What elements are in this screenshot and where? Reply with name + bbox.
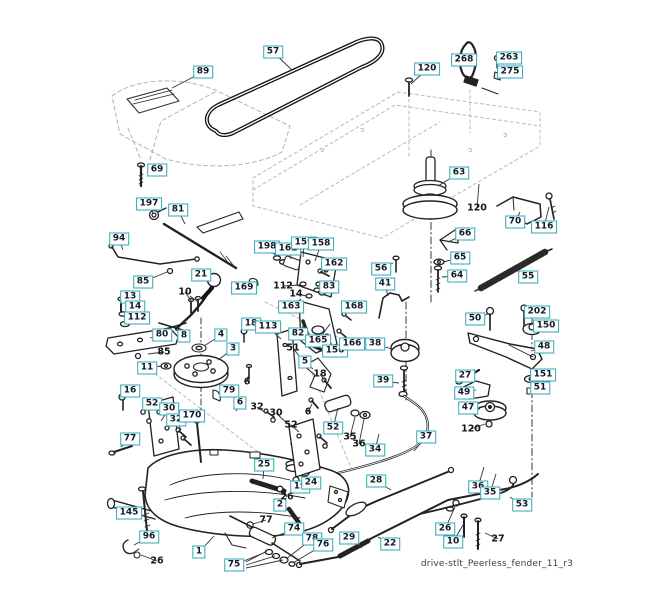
- callout-85-14: 85: [133, 276, 153, 289]
- callout-151-46: 151: [530, 369, 556, 382]
- ref-number-30-9: 30: [269, 408, 282, 419]
- callout-94-13: 94: [109, 233, 129, 246]
- callout-83-22: 83: [319, 281, 339, 294]
- callout-169-21: 169: [231, 282, 257, 295]
- ref-number-18-7: 18: [313, 369, 326, 380]
- ref-number-32-8: 32: [250, 402, 263, 413]
- callout-labels-layer: 5789120268263275691978163701166694852119…: [0, 0, 667, 600]
- callout-8-63: 8: [177, 330, 190, 343]
- callout-37-66: 37: [416, 431, 436, 444]
- ref-number-6-6: 6: [244, 377, 251, 388]
- callout-56-23: 56: [371, 263, 391, 276]
- callout-162-20: 162: [321, 258, 347, 271]
- callout-22-80: 22: [380, 538, 400, 551]
- callout-112-30: 112: [124, 312, 150, 325]
- callout-263-4: 263: [496, 52, 522, 65]
- callout-53-83: 53: [512, 499, 532, 512]
- callout-3-61: 3: [226, 343, 239, 356]
- callout-74-74: 74: [284, 523, 304, 536]
- callout-29-79: 29: [339, 532, 359, 545]
- callout-41-24: 41: [375, 278, 395, 291]
- callout-70-10: 70: [505, 216, 525, 229]
- ref-number-14-2: 14: [289, 289, 302, 300]
- callout-76-77: 76: [313, 539, 333, 552]
- callout-96-72: 96: [139, 531, 159, 544]
- callout-66-12: 66: [455, 228, 475, 241]
- callout-4-62: 4: [214, 329, 227, 342]
- callout-26-81: 26: [435, 523, 455, 536]
- callout-34-65: 34: [365, 444, 385, 457]
- callout-170-56: 170: [179, 410, 205, 423]
- callout-275-5: 275: [497, 66, 523, 79]
- callout-16-52: 16: [120, 385, 140, 398]
- callout-168-32: 168: [341, 301, 367, 314]
- callout-65-25: 65: [450, 252, 470, 265]
- callout-24-69: 24: [301, 477, 321, 490]
- callout-113-35: 113: [255, 321, 281, 334]
- callout-28-78: 28: [366, 475, 386, 488]
- callout-48-44: 48: [534, 341, 554, 354]
- callout-64-26: 64: [447, 270, 467, 283]
- callout-39-50: 39: [373, 375, 393, 388]
- callout-10-82: 10: [443, 536, 463, 549]
- ref-number-77-15: 77: [259, 515, 272, 526]
- ref-number-120-17: 120: [461, 424, 481, 435]
- callout-5-60: 5: [298, 356, 311, 369]
- ref-number-26-16: 26: [150, 556, 163, 567]
- ref-number-36-13: 36: [352, 439, 365, 450]
- ref-number-52-10: 52: [284, 420, 297, 431]
- callout-202-42: 202: [524, 306, 550, 319]
- callout-11-51: 11: [137, 362, 157, 375]
- ref-number-85-4: 85: [157, 347, 170, 358]
- ref-number-26-14: 26: [280, 492, 293, 503]
- callout-145-71: 145: [116, 507, 142, 520]
- callout-55-27: 55: [518, 271, 538, 284]
- callout-197-7: 197: [136, 198, 162, 211]
- callout-158-19: 158: [308, 238, 334, 251]
- callout-27-45: 27: [455, 370, 475, 383]
- callout-47-49: 47: [458, 402, 478, 415]
- callout-81-8: 81: [168, 204, 188, 217]
- callout-116-11: 116: [531, 221, 557, 234]
- ref-number-6-11: 6: [305, 407, 312, 418]
- ref-number-120-0: 120: [467, 203, 487, 214]
- callout-6-59: 6: [233, 397, 246, 410]
- callout-51-47: 51: [530, 382, 550, 395]
- callout-69-6: 69: [147, 164, 167, 177]
- callout-35-85: 35: [480, 487, 500, 500]
- ref-number-27-18: 27: [491, 534, 504, 545]
- callout-166-39: 166: [339, 338, 365, 351]
- callout-63-9: 63: [449, 167, 469, 180]
- callout-57-0: 57: [263, 46, 283, 59]
- callout-50-41: 50: [465, 313, 485, 326]
- callout-268-3: 268: [451, 54, 477, 67]
- callout-120-2: 120: [414, 63, 440, 76]
- ref-number-51-5: 51: [286, 343, 299, 354]
- callout-150-43: 150: [533, 320, 559, 333]
- diagram-caption: drive-stlt_Peerless_fender_11_r3: [421, 559, 573, 569]
- callout-75-75: 75: [224, 559, 244, 572]
- callout-21-15: 21: [191, 269, 211, 282]
- callout-49-48: 49: [454, 387, 474, 400]
- callout-38-40: 38: [365, 338, 385, 351]
- callout-25-67: 25: [254, 459, 274, 472]
- callout-163-31: 163: [278, 301, 304, 314]
- callout-77-57: 77: [120, 433, 140, 446]
- ref-number-10-3: 10: [178, 287, 191, 298]
- callout-52-64: 52: [323, 422, 343, 435]
- callout-80-33: 80: [152, 329, 172, 342]
- callout-1-73: 1: [192, 546, 205, 559]
- callout-89-1: 89: [193, 66, 213, 79]
- parts-diagram-stage: 5789120268263275691978163701166694852119…: [0, 0, 667, 600]
